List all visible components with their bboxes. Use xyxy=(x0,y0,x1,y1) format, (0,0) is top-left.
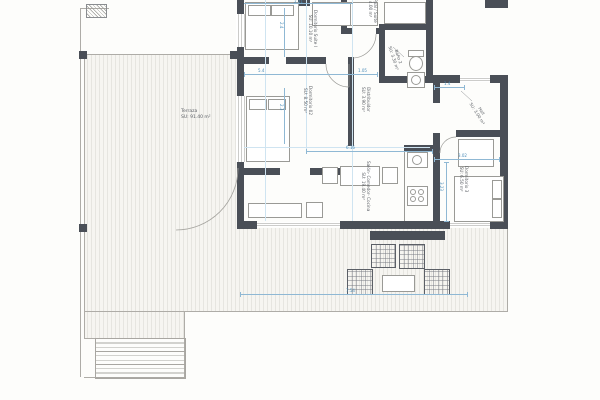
wardrobe-suite xyxy=(312,2,354,26)
terrace-deck-left xyxy=(84,55,237,228)
wall-bano2-top xyxy=(379,24,426,30)
outdoor-table xyxy=(382,275,415,292)
room-name: Dormitorio 02 xyxy=(308,86,313,115)
toilet-bowl xyxy=(409,56,423,71)
dim-tick xyxy=(434,85,435,90)
dim-tick xyxy=(434,157,435,162)
outdoor-chair xyxy=(399,244,425,269)
dim-line-terraza xyxy=(240,294,468,295)
room-area: SU: 8.50 m² xyxy=(302,86,307,115)
guide-line xyxy=(265,0,266,221)
wall-dorm02-salon-a xyxy=(237,168,280,175)
wall-bano-ppal-bottom-a xyxy=(341,28,352,34)
wall-hall-top-b xyxy=(490,75,508,83)
room-name: Salón- Comedor- Cocina xyxy=(366,161,371,211)
dim-line-hall xyxy=(434,87,465,88)
wall-suite-dorm02-c xyxy=(348,57,354,64)
dim-distribuidor-width: 1.05 xyxy=(358,69,367,73)
room-label-terraza: Terraza SU: 91.40 m² xyxy=(181,109,211,121)
dim-tick xyxy=(244,72,245,77)
burner xyxy=(410,189,416,195)
room-label-bano-ppal: Baño Ppal / Suite SU: 4.00 m² xyxy=(367,0,378,23)
guide-line xyxy=(244,147,430,148)
dim-dorm02-width: 5.4 xyxy=(258,69,264,73)
room-area: SU: 6.50 m² xyxy=(458,166,463,192)
room-name: Distribuidor xyxy=(366,87,371,112)
outdoor-chair xyxy=(424,269,450,295)
column xyxy=(79,51,87,59)
dim-dorm3-width: 3.02 xyxy=(458,154,467,158)
dim-hall-width: 1.4 xyxy=(444,82,450,86)
sliding-glass-door xyxy=(257,222,340,227)
room-area: SU: 4.00 m² xyxy=(367,0,372,23)
dim-tick xyxy=(464,85,465,90)
wall-hall-dorm3 xyxy=(456,130,500,137)
sink-basin xyxy=(411,75,421,85)
dim-tick xyxy=(467,292,468,297)
floor-plan: 2.41 2.4 5.4 1.05 2.3 1.4 6.16 3.02 3.23… xyxy=(0,0,600,400)
room-area: SU: 10.10 m² xyxy=(307,10,312,47)
dim-line-dorm3-v xyxy=(446,162,447,222)
window-suite xyxy=(236,14,245,47)
room-label-dormitorio-suite: Dormitorio Suite I SU: 10.10 m² xyxy=(307,10,318,47)
pillow xyxy=(492,199,502,218)
dim-tick xyxy=(444,162,449,163)
dim-dorm3-depth: 3.23 xyxy=(439,182,443,191)
column xyxy=(79,224,87,232)
dim-tick xyxy=(240,292,241,297)
shaft-hatch-box xyxy=(86,4,107,18)
dim-suite-depth: 2.4 xyxy=(279,22,283,28)
dim-line-dorm02-v xyxy=(284,88,285,144)
window-dorm02 xyxy=(236,96,245,162)
door-arc-bano xyxy=(352,34,376,58)
room-area: SU: 19.40 m² xyxy=(360,161,365,211)
room-label-distribuidor: Distribuidor SU: 3.90 m² xyxy=(360,87,371,112)
terrace-edge-left-outer xyxy=(80,8,81,377)
room-name: Dormitorio 3 xyxy=(464,166,469,192)
dim-tick xyxy=(306,149,307,154)
burner xyxy=(418,196,424,202)
pillow xyxy=(492,180,502,199)
room-label-dormitorio-02: Dormitorio 02 SU: 8.50 m² xyxy=(302,86,313,115)
window-hall xyxy=(460,77,490,82)
room-label-salon: Salón- Comedor- Cocina SU: 19.40 m² xyxy=(360,161,371,211)
room-area: SU: 3.90 m² xyxy=(360,87,365,112)
dining-chair xyxy=(382,167,398,184)
terrace-deck-bottom-left xyxy=(84,311,184,338)
deck-planter xyxy=(370,231,445,240)
room-label-dormitorio-3: Dormitorio 3 SU: 6.50 m² xyxy=(458,166,469,192)
wall-hall-salon-b xyxy=(433,133,440,229)
dim-line-dorm3 xyxy=(434,159,500,160)
door-arc-suite xyxy=(326,64,349,87)
dim-terraza-width: 7.54 xyxy=(346,289,355,293)
burner xyxy=(418,189,424,195)
staircase xyxy=(95,338,186,379)
room-area: SU: 91.40 m² xyxy=(181,115,211,121)
dim-tick xyxy=(444,221,449,222)
wall-banos-right xyxy=(426,0,433,83)
door-arc-hall xyxy=(440,137,456,153)
wall-bottom-c xyxy=(490,221,508,229)
dim-tick xyxy=(377,72,378,77)
burner xyxy=(410,196,416,202)
wall-bottom-a xyxy=(237,221,257,229)
terrace-edge-top xyxy=(84,54,237,55)
room-name: Baño Ppal / Suite xyxy=(373,0,378,23)
window-dorm3 xyxy=(450,222,490,227)
wall-bottom-b xyxy=(340,221,450,229)
dim-line-mid xyxy=(244,74,378,75)
dim-line-salon xyxy=(306,151,433,152)
dim-tick xyxy=(432,149,433,154)
dim-top: 2.41 xyxy=(294,0,303,4)
room-label-bano2: Baño 2 SU: 3.30 m² xyxy=(387,44,405,71)
dim-line-suite-v xyxy=(284,8,285,57)
pillow xyxy=(248,5,271,16)
armchair xyxy=(306,202,323,218)
terrace-edge-left-inner xyxy=(84,55,85,338)
leader-hall xyxy=(461,91,472,101)
dim-dorm02-depth: 2.3 xyxy=(279,104,283,110)
terrace-edge-bottom xyxy=(84,311,508,312)
sofa xyxy=(248,203,302,218)
pillow xyxy=(271,5,294,16)
kitchen-counter-line xyxy=(404,151,405,221)
room-label-hall: Hall SU: 3.00 m² xyxy=(468,99,490,126)
dim-tick xyxy=(499,157,500,162)
outdoor-chair xyxy=(371,244,396,268)
guide-line xyxy=(352,0,353,221)
dim-salon-width: 6.16 xyxy=(346,146,355,150)
terrace-edge-right xyxy=(507,228,508,312)
kitchen-sink-basin xyxy=(412,155,422,165)
wall-top-stub-b xyxy=(485,0,508,8)
wall-dorm02-distribuidor xyxy=(348,64,354,146)
bathtub xyxy=(384,2,426,24)
room-name: Dormitorio Suite I xyxy=(313,10,318,47)
dining-chair xyxy=(322,167,338,184)
wall-bano2-left xyxy=(379,24,385,82)
